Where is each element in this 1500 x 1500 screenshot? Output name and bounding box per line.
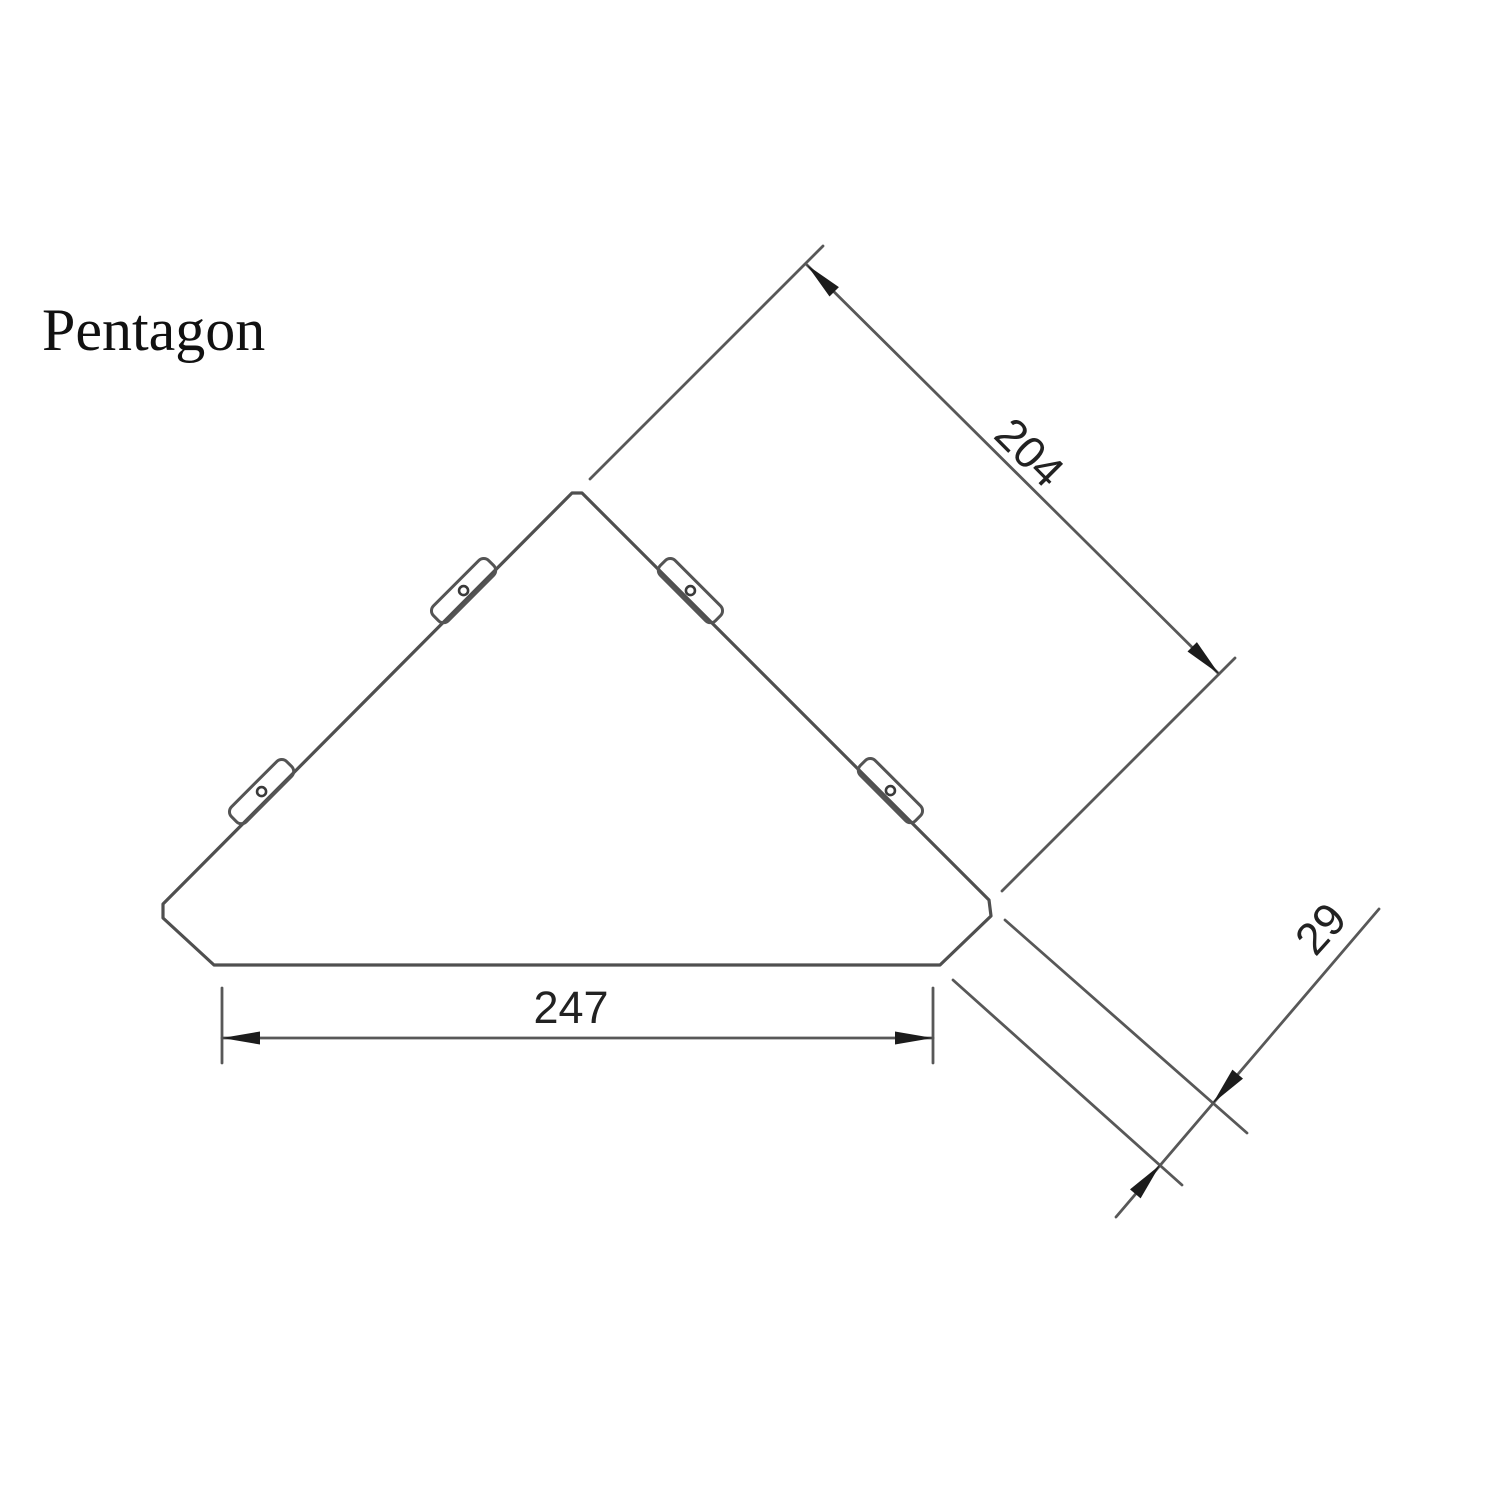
mounting-tab-upper-left xyxy=(429,556,499,626)
mounting-tab-lower-left xyxy=(227,757,297,827)
arrowhead-right-icon xyxy=(895,1032,933,1045)
technical-drawing-canvas: Pentagon 204 xyxy=(0,0,1500,1500)
dimension-247: 247 xyxy=(222,982,933,1063)
tab-outline xyxy=(855,756,925,826)
pentagon-outline xyxy=(163,493,991,965)
dimension-29: 29 xyxy=(953,893,1379,1217)
tab-hole xyxy=(457,584,470,597)
dimension-204: 204 xyxy=(590,246,1235,891)
extension-line xyxy=(953,980,1182,1185)
extension-line xyxy=(1005,920,1247,1133)
tab-outline xyxy=(429,556,499,626)
dimension-label-29: 29 xyxy=(1285,893,1356,964)
extension-line xyxy=(1002,658,1235,891)
arrowhead-down-icon xyxy=(1188,642,1220,674)
pentagon-drawing-svg: Pentagon 204 xyxy=(0,0,1500,1500)
dimension-label-204: 204 xyxy=(985,408,1074,497)
mounting-tab-upper-right xyxy=(655,556,725,626)
arrowhead-left-icon xyxy=(222,1032,260,1045)
mounting-tab-lower-right xyxy=(855,756,925,826)
tab-outline xyxy=(655,556,725,626)
dimension-label-247: 247 xyxy=(533,982,608,1033)
tab-outline xyxy=(227,757,297,827)
tab-hole xyxy=(255,785,268,798)
extension-line xyxy=(590,246,823,479)
arrowhead-up-icon xyxy=(807,265,839,297)
drawing-title: Pentagon xyxy=(42,297,265,363)
